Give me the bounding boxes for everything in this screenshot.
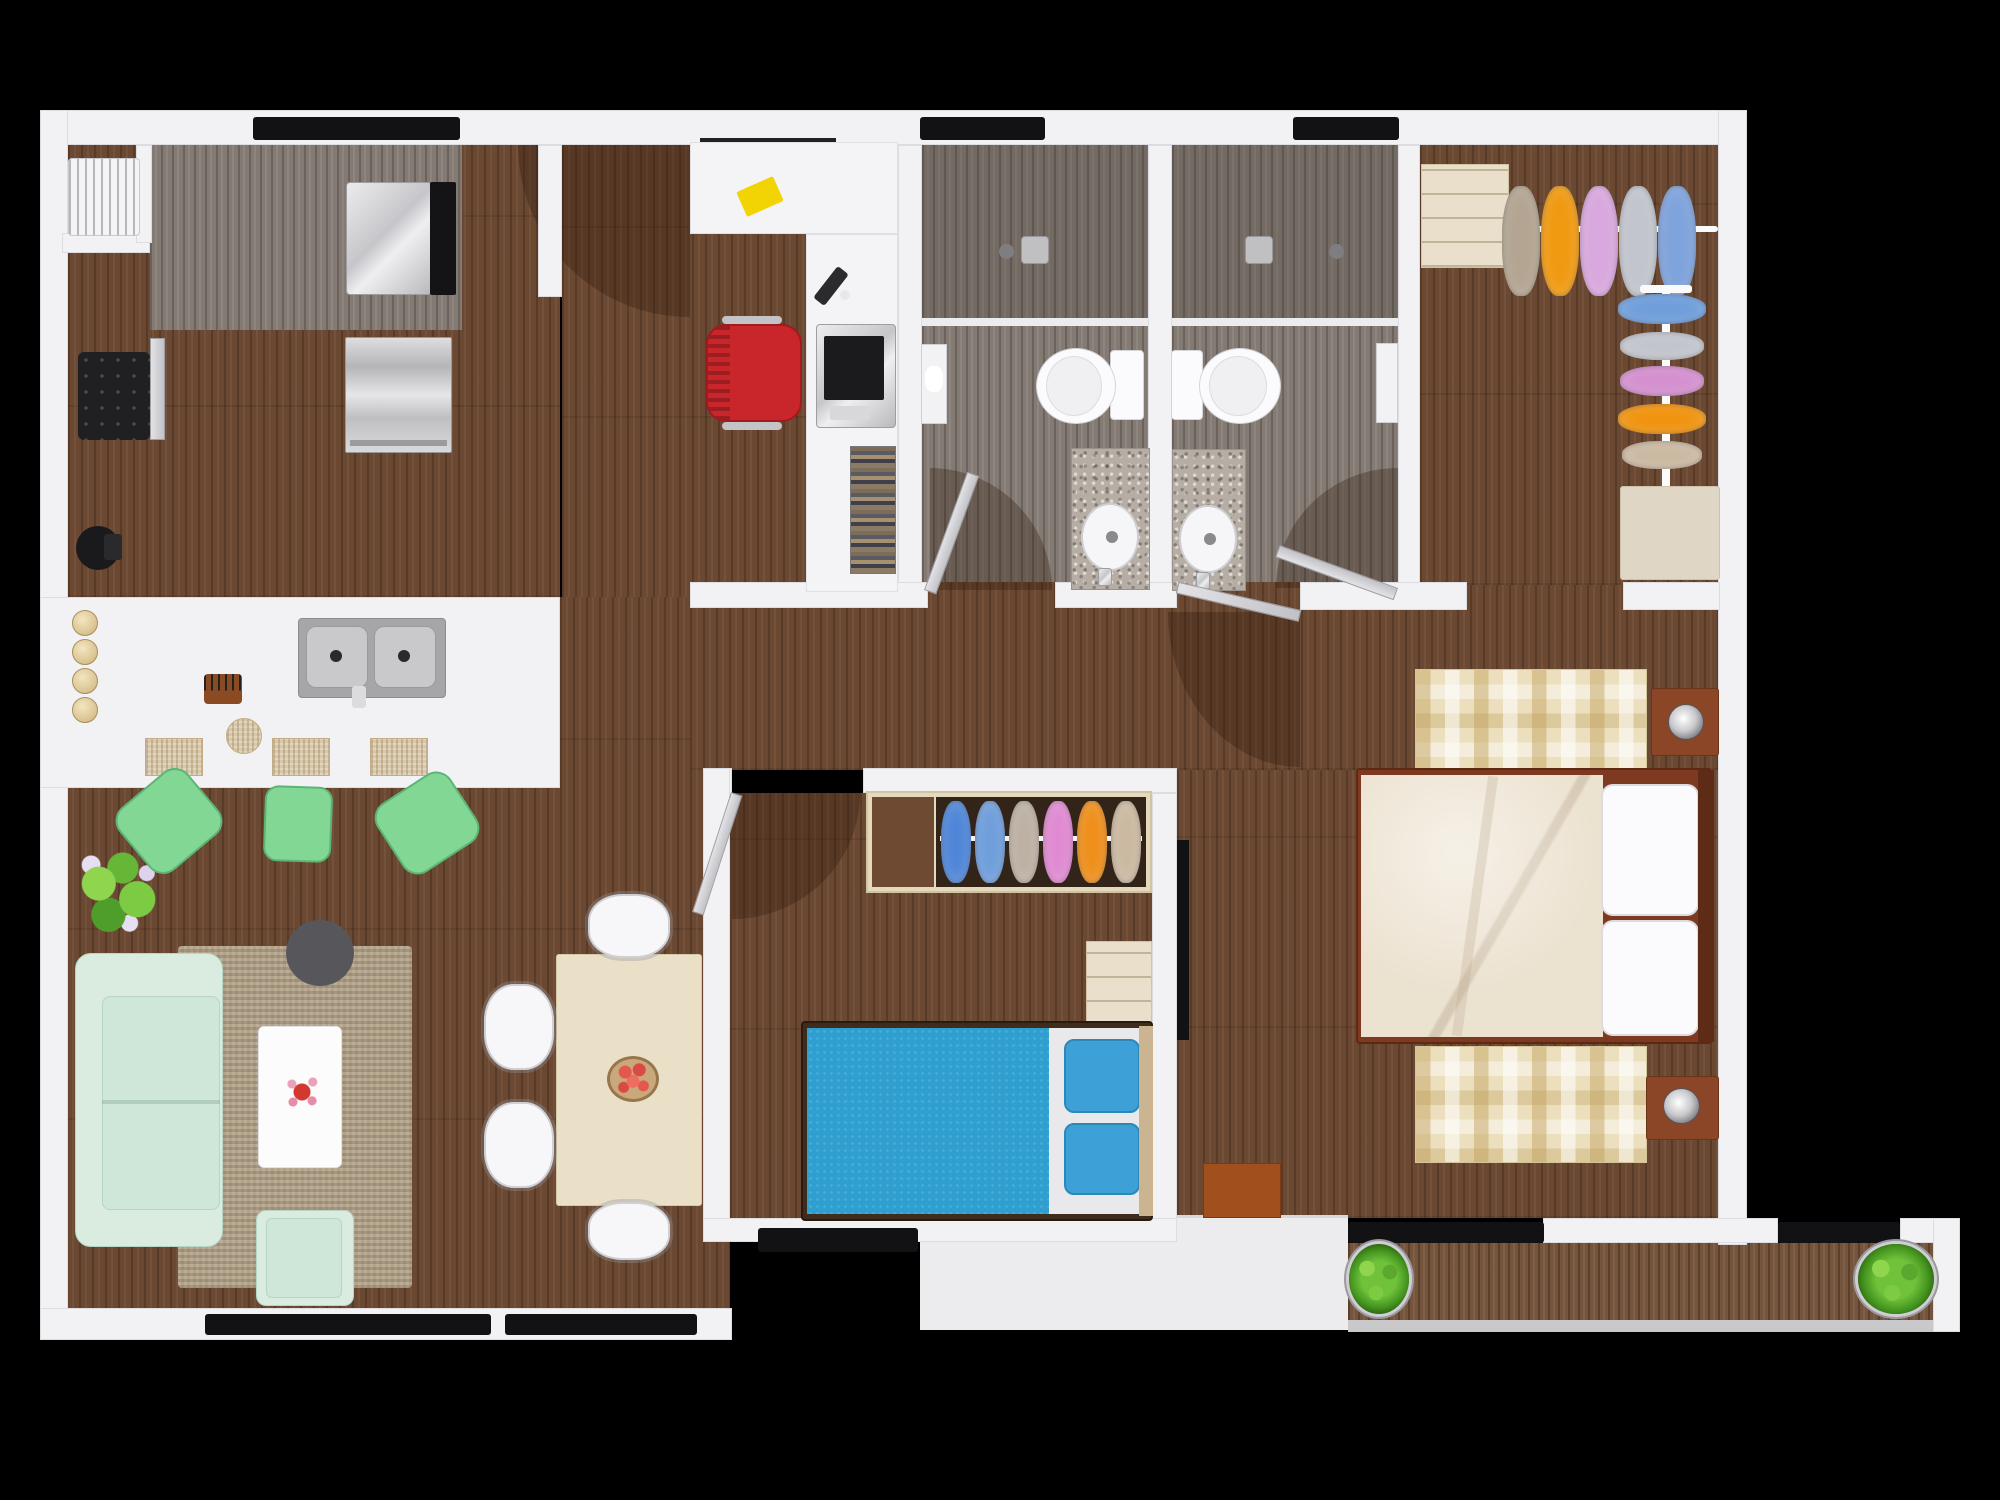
closet-garment-gray	[1619, 186, 1657, 296]
floor-balcony	[1348, 1243, 1935, 1322]
window-bath2	[1293, 117, 1399, 140]
sink-drain-right	[398, 650, 410, 662]
office-chair-arm-bottom	[722, 422, 782, 430]
kids-dresser	[1086, 941, 1152, 1027]
window-living-1	[205, 1314, 491, 1335]
shower-threshold-bath2	[1172, 318, 1398, 326]
window-kitchen	[253, 117, 460, 140]
basin-drain-bath1	[1106, 531, 1118, 543]
fruit-bowl	[607, 1056, 659, 1102]
closet-garment-tan	[1502, 186, 1540, 296]
towel-bar-bath2	[1376, 343, 1398, 423]
kitchen-mat	[78, 352, 150, 440]
desk-mouse	[840, 290, 850, 300]
rack-garment-pink	[1620, 366, 1704, 396]
floor-plan-scene	[0, 0, 2000, 1500]
placemat-3	[370, 738, 428, 776]
rack-garment-gray	[1620, 332, 1704, 360]
dining-chair-bottom	[588, 1202, 670, 1260]
laptop-trackpad	[830, 406, 870, 420]
dining-chair-top	[588, 894, 670, 958]
wall-bath1-bath2	[1148, 145, 1172, 608]
kids-wardrobe-door	[872, 797, 934, 887]
kids-tv-strip	[1177, 840, 1189, 1040]
nightstand-lamp-bottom	[1663, 1088, 1700, 1124]
trivet	[226, 718, 262, 754]
dishwasher	[345, 337, 452, 453]
placemat-2	[272, 738, 330, 776]
wall-kids-east	[1152, 793, 1177, 1230]
wall-balcony-east	[1933, 1218, 1960, 1332]
kids-garment-orange	[1077, 801, 1107, 883]
window-kids	[758, 1228, 918, 1252]
laptop-keyboard	[824, 336, 884, 400]
pouf	[286, 920, 354, 986]
kids-pillow-2	[1064, 1123, 1140, 1195]
shower-drain-bath2	[1329, 244, 1344, 259]
kids-garment-blue-1	[941, 801, 971, 883]
office-chair-red	[706, 324, 802, 422]
rack-garment-orange	[1618, 404, 1706, 434]
kids-garment-tan	[1009, 801, 1039, 883]
office-chair-arm-top	[722, 316, 782, 324]
wall-kitchen-stub	[538, 145, 562, 297]
toilet-seat-bath1	[1046, 356, 1102, 416]
rack-garment-blue	[1618, 294, 1706, 324]
sink-drain-left	[330, 650, 342, 662]
kids-bed-duvet	[807, 1028, 1049, 1214]
shower-head-bath1	[1021, 236, 1049, 264]
armchair-seat	[266, 1218, 342, 1298]
closet-garment-orange	[1541, 186, 1579, 296]
wall-right	[1718, 110, 1747, 1245]
master-headboard	[1698, 770, 1714, 1042]
rack-garment-tan	[1622, 441, 1702, 469]
wall-office-bath1	[898, 145, 922, 608]
shower-zone-bath1	[922, 145, 1148, 318]
kids-garment-blue-2	[975, 801, 1005, 883]
wall-balcony-corner	[1900, 1218, 1935, 1243]
window-bath1	[920, 117, 1045, 140]
shower-head-bath2	[1245, 236, 1273, 264]
door-leaf-kitchen	[150, 338, 165, 440]
master-pillow-2	[1601, 920, 1699, 1036]
shower-zone-bath2	[1172, 145, 1398, 318]
jar-3	[72, 668, 98, 694]
balcony-plant-1	[1349, 1244, 1409, 1314]
master-rug-bottom	[1415, 1046, 1647, 1163]
washing-machine	[68, 158, 140, 236]
kids-headboard	[1139, 1026, 1153, 1216]
closet-garment-blue	[1658, 186, 1696, 296]
master-rug-top	[1415, 669, 1647, 772]
basin-faucet-bath1	[1098, 568, 1112, 586]
nightstand-lamp-top	[1668, 704, 1704, 740]
window-balcony	[1778, 1222, 1900, 1243]
closet-dresser	[1421, 164, 1509, 268]
dining-chair-left-2	[484, 1102, 554, 1188]
kids-garment-cream	[1111, 801, 1141, 883]
toilet-seat-bath2	[1209, 356, 1267, 416]
stove-control-strip	[430, 182, 456, 295]
kids-garment-pink	[1043, 801, 1073, 883]
kids-pillow-1	[1064, 1039, 1140, 1113]
magazine-rack	[850, 446, 896, 574]
closet-rack-bar	[1640, 285, 1692, 293]
wall-closet-south-east	[1623, 582, 1720, 610]
stove	[346, 182, 432, 295]
knife-block	[204, 674, 242, 704]
sofa-cushion-split	[102, 1100, 220, 1104]
shower-threshold-bath1	[922, 318, 1148, 326]
master-pillow-1	[1601, 784, 1699, 916]
jar-1	[72, 610, 98, 636]
jar-2	[72, 639, 98, 665]
coffee-machine-spout	[104, 534, 122, 560]
basin-drain-bath2	[1204, 533, 1216, 545]
window-master	[1348, 1222, 1544, 1243]
wall-bath2-closet	[1398, 145, 1420, 610]
bar-stool-2	[263, 785, 334, 863]
closet-mat	[1620, 486, 1720, 580]
desk-top	[690, 142, 898, 234]
wall-master-south	[1543, 1218, 1778, 1243]
jar-4	[72, 697, 98, 723]
balcony-sill	[1348, 1320, 1935, 1332]
master-bench-box	[1203, 1163, 1281, 1218]
dining-chair-left-1	[484, 984, 554, 1070]
kitchen-faucet	[352, 686, 366, 708]
dishwasher-handle	[350, 440, 447, 446]
coffee-table-flowers	[284, 1072, 320, 1112]
tp-roll-bath1	[925, 366, 943, 392]
shower-drain-bath1	[999, 244, 1014, 259]
window-living-2	[505, 1314, 697, 1335]
balcony-plant-2	[1858, 1244, 1934, 1314]
wall-kids-north	[863, 768, 1177, 793]
closet-garment-lavender	[1580, 186, 1618, 296]
